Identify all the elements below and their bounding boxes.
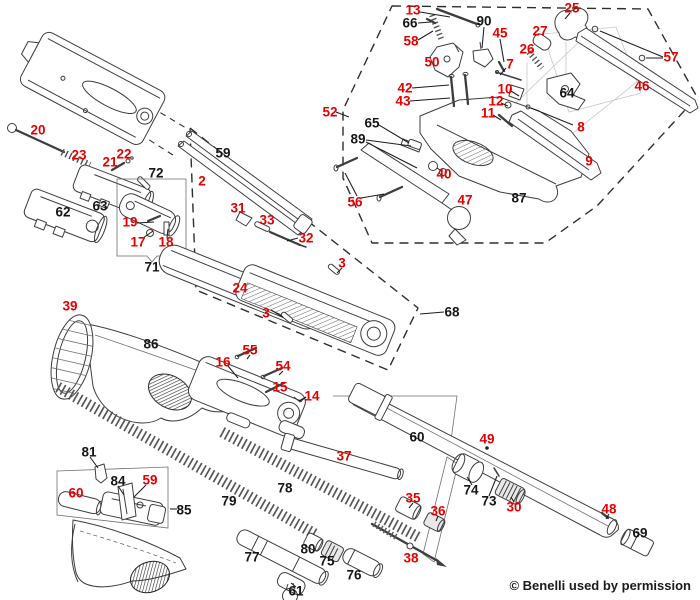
part-label-31-40: 31: [230, 201, 245, 215]
part-label-37-54: 37: [336, 449, 351, 463]
lower-receiver: [183, 354, 318, 450]
bottom-stock: [72, 520, 186, 598]
part-label-76-65: 76: [346, 568, 361, 582]
part-label-38-67: 38: [403, 551, 418, 565]
part-label-22-30: 22: [116, 147, 131, 161]
part-label-59-57: 59: [142, 473, 157, 487]
part-label-2-39: 2: [198, 174, 206, 188]
part-label-19-34: 19: [122, 215, 137, 229]
carrier-84-59: [99, 483, 166, 527]
part-label-16-50: 16: [215, 355, 230, 369]
part-label-46-10: 46: [634, 79, 649, 93]
part-label-64-17: 64: [559, 86, 574, 100]
barrel-60: [346, 379, 619, 537]
part-label-8-18: 8: [577, 120, 585, 134]
part-label-86-48: 86: [143, 337, 158, 351]
part-label-49-71: 49: [479, 432, 494, 446]
part-label-26-7: 26: [519, 42, 534, 56]
part-label-59-38: 59: [215, 146, 230, 160]
part-label-52-26: 52: [322, 105, 337, 119]
part-label-62-33: 62: [55, 205, 70, 219]
part-label-47-24: 47: [457, 193, 472, 207]
diagram-canvas: 1366589045252726757465042431012116486589…: [0, 0, 700, 600]
part-label-24-44: 24: [232, 281, 247, 295]
front-sight-bead-49: [485, 446, 489, 450]
part-label-40-22: 40: [436, 167, 451, 181]
part-label-25-5: 25: [564, 1, 579, 15]
part-label-50-11: 50: [424, 55, 439, 69]
part-label-55-49: 55: [242, 343, 257, 357]
copyright-notice: © Benelli used by permission: [509, 578, 691, 593]
part-label-7-8: 7: [506, 57, 514, 71]
part-label-81-55: 81: [81, 445, 96, 459]
part-label-78-60: 78: [277, 481, 292, 495]
part-label-69-76: 69: [632, 526, 647, 540]
part-label-65-19: 65: [364, 116, 379, 130]
part-label-39-47: 39: [62, 299, 77, 313]
part-label-71-37: 71: [144, 260, 159, 274]
part-label-14-53: 14: [304, 389, 319, 403]
part-label-72-31: 72: [148, 166, 163, 180]
rail-46: [576, 26, 698, 113]
part-label-60-58: 60: [68, 486, 83, 500]
part-18: [164, 222, 169, 235]
part-label-90-3: 90: [476, 14, 491, 28]
part-label-75-64: 75: [319, 554, 334, 568]
part-label-33-41: 33: [259, 213, 274, 227]
part-label-11-16: 11: [481, 106, 495, 120]
part-label-17-35: 17: [130, 235, 145, 249]
part-label-68-46: 68: [444, 305, 459, 319]
part-label-45-4: 45: [492, 26, 507, 40]
part-label-77-62: 77: [244, 550, 259, 564]
part-label-79-61: 79: [221, 494, 236, 508]
part-label-80-63: 80: [300, 542, 315, 556]
part-label-89-20: 89: [350, 132, 365, 146]
part-label-84-56: 84: [110, 474, 125, 488]
part-label-63-32: 63: [92, 199, 107, 213]
part-label-30-74: 30: [506, 500, 521, 514]
part-label-73-73: 73: [481, 494, 496, 508]
lever-7: [496, 71, 522, 81]
part-label-48-75: 48: [601, 502, 616, 516]
hammer-spring-58-13-66: [427, 9, 480, 41]
part-label-3-45: 3: [262, 306, 270, 320]
exploded-diagram-drawing: [0, 0, 700, 600]
part-label-35-68: 35: [405, 491, 420, 505]
part-label-58-2: 58: [403, 34, 418, 48]
part-label-32-42: 32: [298, 231, 313, 245]
part-label-20-27: 20: [30, 123, 45, 137]
part-label-18-36: 18: [158, 235, 173, 249]
part-label-3-43: 3: [338, 256, 346, 270]
part-label-43-13: 43: [395, 94, 410, 108]
part-label-87-25: 87: [511, 191, 526, 205]
part-label-21-29: 21: [102, 155, 117, 169]
disconnector-90: [473, 42, 493, 67]
part-label-36-69: 36: [430, 504, 445, 518]
part-label-9-21: 9: [585, 154, 593, 168]
part-label-66-1: 66: [402, 16, 417, 30]
part-label-74-72: 74: [463, 483, 478, 497]
part-label-61-66: 61: [288, 584, 303, 598]
part-label-54-51: 54: [275, 359, 290, 373]
part-label-56-23: 56: [347, 195, 362, 209]
screw-57b: [639, 55, 645, 61]
part-label-85-59: 85: [176, 503, 191, 517]
part-label-23-28: 23: [71, 148, 86, 162]
part-label-57-9: 57: [663, 50, 678, 64]
part-label-60-70: 60: [409, 430, 424, 444]
detent-45: [499, 62, 504, 71]
part-label-27-6: 27: [532, 24, 547, 38]
part-label-15-52: 15: [272, 380, 287, 394]
